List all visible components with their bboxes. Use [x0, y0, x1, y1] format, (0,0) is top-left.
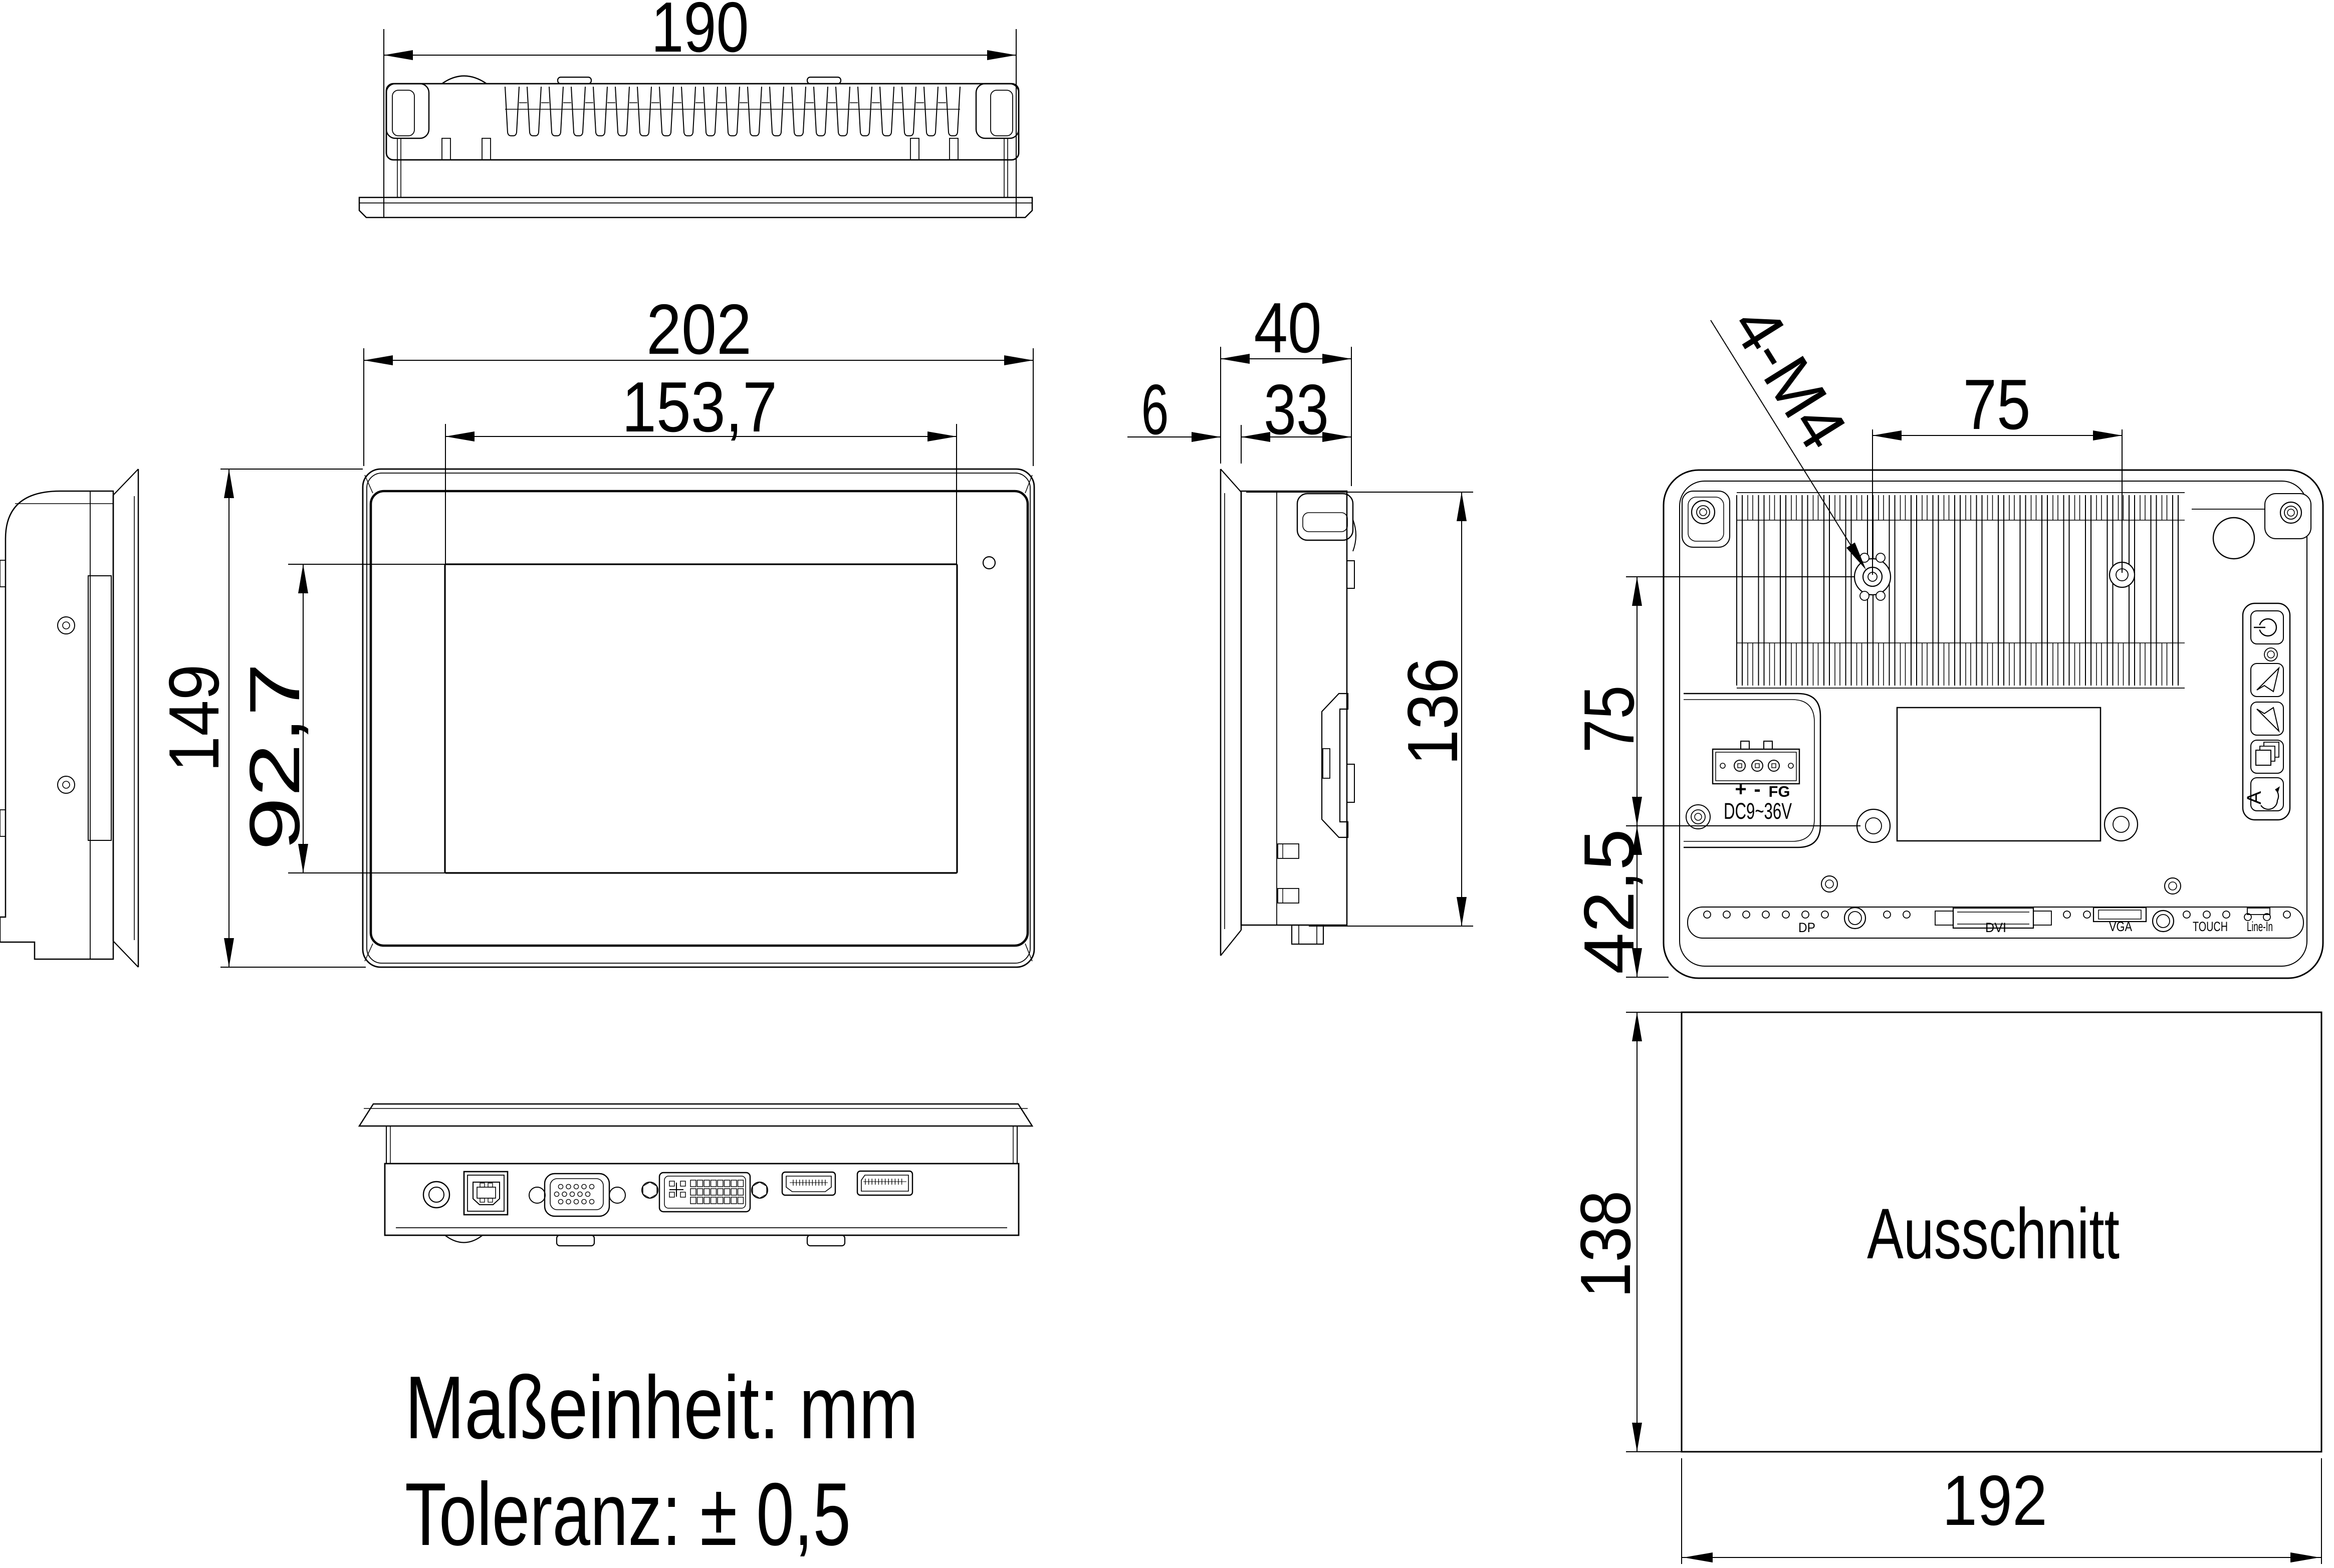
svg-text:40: 40 — [1254, 288, 1322, 368]
svg-text:153,7: 153,7 — [622, 367, 777, 447]
svg-text:TOUCH: TOUCH — [2193, 919, 2228, 934]
svg-text:75: 75 — [1963, 365, 2031, 444]
svg-text:33: 33 — [1264, 370, 1329, 450]
svg-text:6: 6 — [1141, 370, 1169, 450]
svg-text:DP: DP — [1798, 920, 1815, 935]
svg-text:138: 138 — [1566, 1191, 1646, 1298]
svg-text:DVI: DVI — [1985, 920, 2006, 935]
svg-text:92,7: 92,7 — [235, 663, 315, 851]
svg-text:+: + — [1735, 778, 1746, 800]
svg-text:A: A — [2243, 791, 2265, 804]
svg-text:75: 75 — [1569, 686, 1649, 753]
svg-text:42,5: 42,5 — [1569, 829, 1649, 974]
svg-text:136: 136 — [1393, 658, 1473, 766]
svg-text:Toleranz: ± 0,5: Toleranz: ± 0,5 — [405, 1464, 851, 1564]
svg-text:192: 192 — [1942, 1461, 2047, 1540]
svg-text:FG: FG — [1768, 783, 1790, 800]
svg-text:Ausschnitt: Ausschnitt — [1867, 1194, 2120, 1274]
svg-text:VGA: VGA — [2109, 919, 2132, 934]
svg-text:Maßeinheit: mm: Maßeinheit: mm — [405, 1358, 918, 1457]
svg-text:Line-In: Line-In — [2247, 919, 2273, 934]
svg-text:149: 149 — [154, 664, 234, 772]
svg-text:DC9~36V: DC9~36V — [1724, 798, 1792, 824]
svg-text:-: - — [1754, 778, 1760, 800]
svg-text:190: 190 — [651, 0, 749, 67]
svg-text:202: 202 — [646, 290, 752, 369]
